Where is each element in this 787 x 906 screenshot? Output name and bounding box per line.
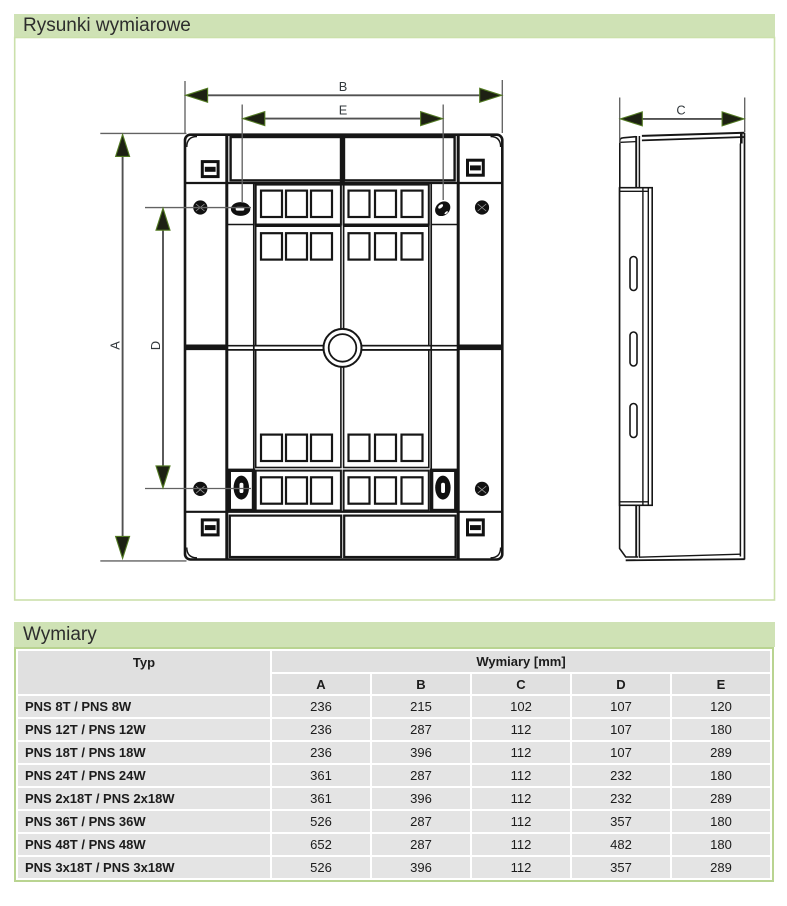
svg-text:D: D [148, 341, 163, 350]
svg-text:B: B [339, 79, 348, 94]
svg-text:C: C [676, 103, 685, 118]
svg-text:A: A [108, 341, 123, 350]
svg-text:E: E [339, 102, 348, 117]
